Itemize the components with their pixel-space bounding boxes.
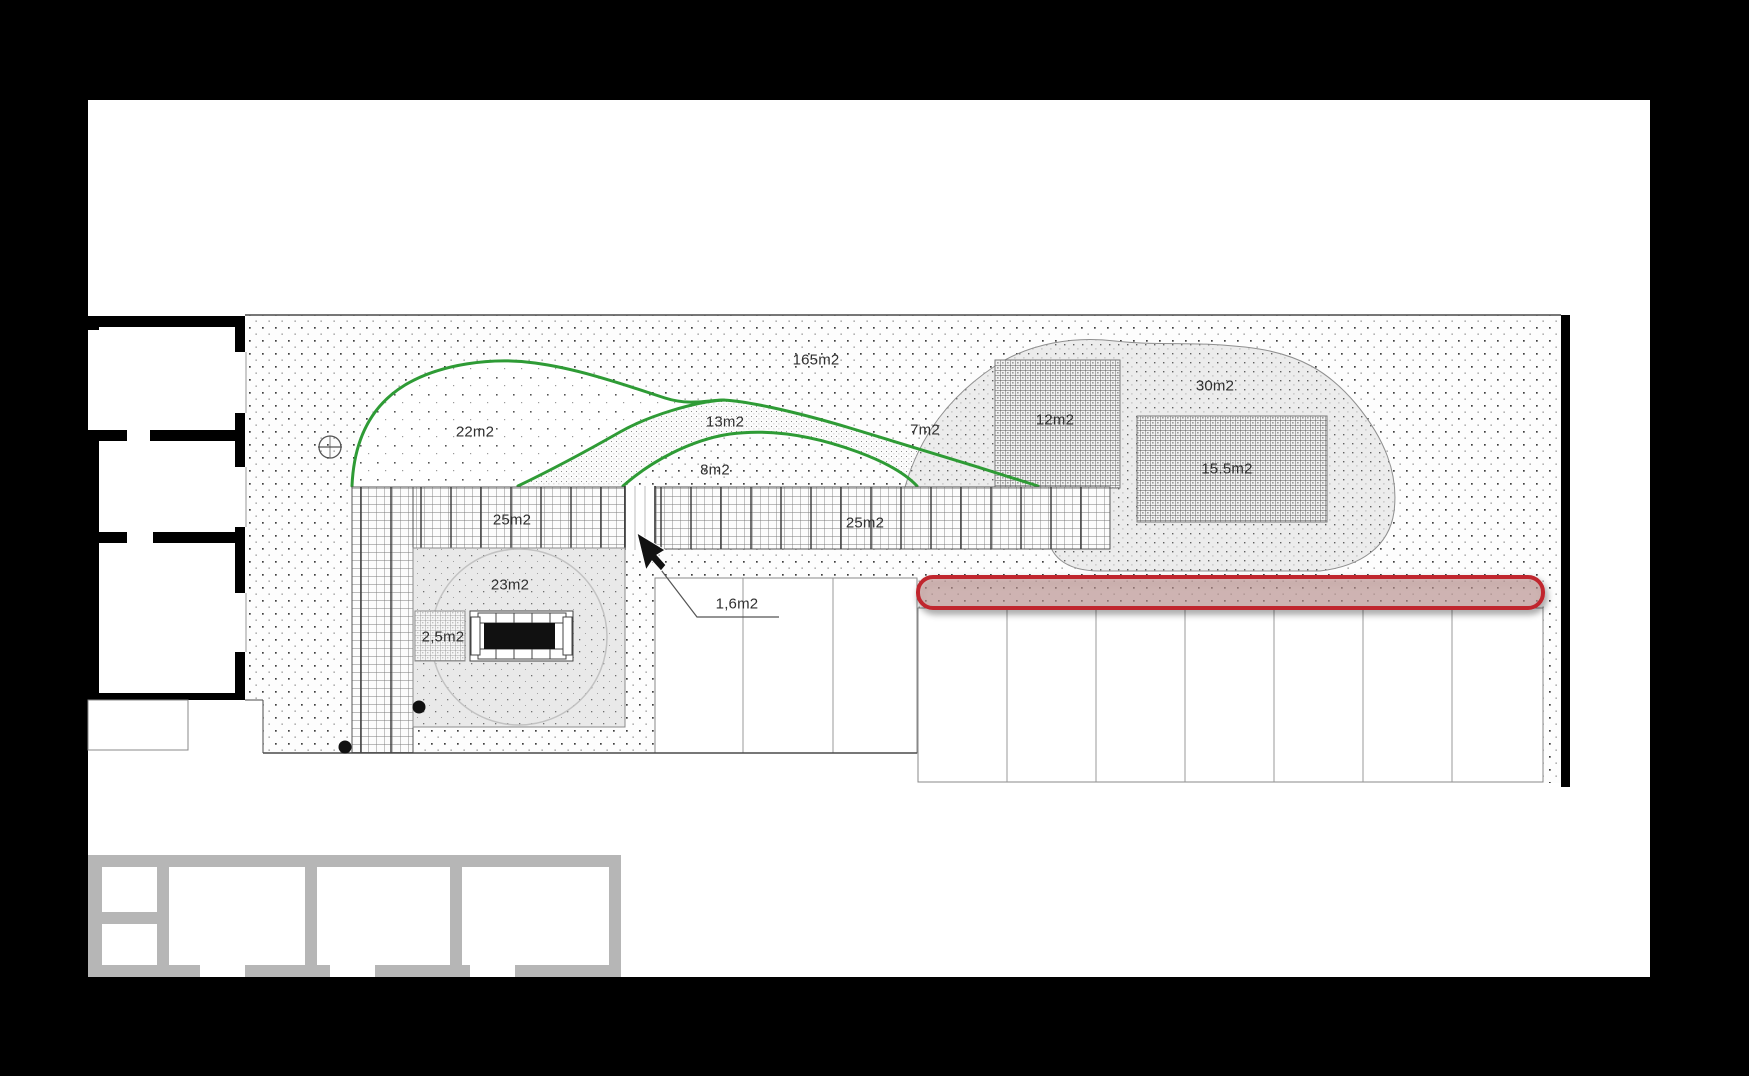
area-label-2_5m2: 2,5m2 <box>422 629 465 646</box>
boundary-thick-line <box>1561 315 1570 787</box>
area-label-15_5m2: 15.5m2 <box>1201 461 1252 478</box>
screenshot-stage: 165m2 22m2 13m2 7m2 8m2 30m2 12m2 15.5m2… <box>0 0 1749 1076</box>
bollard-dot <box>339 741 352 754</box>
stall-area-middle <box>655 578 917 753</box>
area-label-8m2: 8m2 <box>700 462 730 479</box>
area-label-22m2: 22m2 <box>456 424 494 441</box>
survey-marker-icon <box>318 436 342 458</box>
area-label-165m2: 165m2 <box>793 352 840 369</box>
area-label-7m2: 7m2 <box>910 422 940 439</box>
area-label-25m2-right: 25m2 <box>846 515 884 532</box>
stall-area-right <box>918 608 1543 782</box>
picnic-table-symbol <box>470 611 573 661</box>
area-label-13m2: 13m2 <box>706 414 744 431</box>
site-plan-drawing <box>0 0 1749 1076</box>
area-label-12m2: 12m2 <box>1036 412 1074 429</box>
area-label-25m2-left: 25m2 <box>493 512 531 529</box>
red-highlight-annotation[interactable] <box>918 577 1543 608</box>
building-annex-outline <box>88 700 188 750</box>
bollard-dot <box>413 701 426 714</box>
area-label-23m2: 23m2 <box>491 577 529 594</box>
area-label-30m2: 30m2 <box>1196 378 1234 395</box>
area-label-1_6m2: 1,6m2 <box>716 596 759 613</box>
